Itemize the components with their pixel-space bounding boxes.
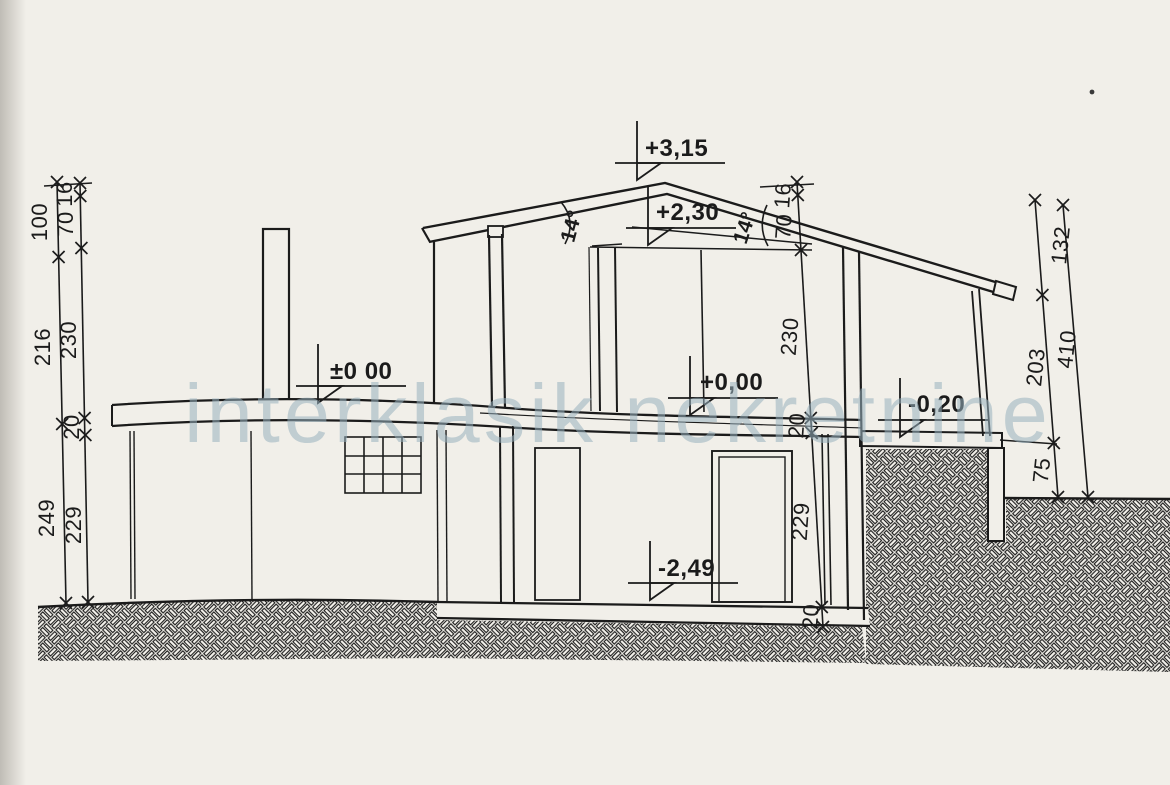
- watermark-text: interklasik nekretnine: [184, 367, 1052, 460]
- elevation-label-attic: +2,30: [656, 199, 719, 226]
- dim-label: 410: [1052, 329, 1081, 370]
- elevation-label-basement: -2,49: [658, 555, 715, 582]
- dim-label: 75: [1028, 456, 1056, 484]
- dim-label: 249: [34, 499, 59, 537]
- elevation-label-ridge: +3,15: [645, 135, 708, 162]
- scanned-drawing-page: +3,15 +2,30 ±0 00 +0,00 -0,20 -2,49 14° …: [0, 0, 1170, 785]
- dim-label: 70: [770, 213, 797, 240]
- dim-label: 230: [56, 321, 81, 359]
- scan-edge-shadow: [0, 0, 26, 785]
- dim-label: 20: [797, 603, 824, 630]
- dim-label: 16: [52, 181, 77, 206]
- dim-label: 132: [1046, 225, 1075, 266]
- basement-window: [535, 448, 580, 600]
- dim-label: 229: [787, 502, 815, 542]
- dim-label: 20: [59, 414, 84, 439]
- dim-label: 216: [30, 328, 55, 366]
- dim-label: 70: [53, 211, 78, 236]
- dim-label: 100: [27, 203, 52, 241]
- section-drawing: +3,15 +2,30 ±0 00 +0,00 -0,20 -2,49 14° …: [0, 0, 1170, 785]
- basement-door: [712, 451, 792, 602]
- wall-plate: [488, 226, 503, 237]
- dim-label: 16: [769, 182, 796, 209]
- dim-label: 229: [61, 506, 86, 544]
- scan-speck: [1090, 90, 1095, 95]
- dim-label: 230: [776, 317, 804, 357]
